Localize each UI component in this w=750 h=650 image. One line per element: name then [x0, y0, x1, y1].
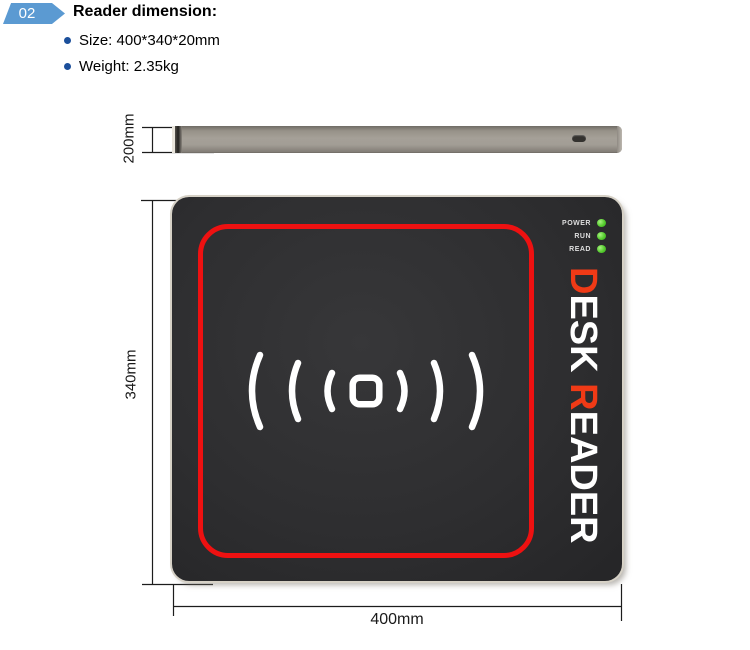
- led-label: READ: [569, 246, 591, 253]
- led-indicator-icon: [597, 245, 606, 253]
- led-panel: POWER RUN READ: [562, 219, 606, 258]
- brand-letter: R: [562, 383, 604, 410]
- side-edge-right: [617, 126, 622, 153]
- brand-letters: ESK: [562, 294, 604, 383]
- dim-label-height: 340mm: [123, 335, 140, 415]
- rfid-waves-icon: [238, 349, 494, 433]
- device-front-view: POWER RUN READ DESK READER: [172, 197, 622, 581]
- led-row-run: RUN: [562, 232, 606, 240]
- dim-label-width: 400mm: [347, 611, 447, 629]
- led-indicator-icon: [597, 219, 606, 227]
- device-side-view: [172, 126, 622, 153]
- product-dimension-figure: 02 Reader dimension: Size: 400*340*20mm …: [0, 0, 750, 650]
- dim-label-thickness: 200mm: [121, 99, 138, 179]
- brand-text: DESK READER: [562, 267, 604, 559]
- led-label: RUN: [574, 233, 591, 240]
- led-indicator-icon: [597, 232, 606, 240]
- brand-letters: EADER: [562, 411, 604, 544]
- brand-letter: D: [562, 267, 604, 294]
- side-edge-shadow: [175, 126, 182, 153]
- usb-port: [572, 135, 586, 142]
- led-row-power: POWER: [562, 219, 606, 227]
- led-row-read: READ: [562, 245, 606, 253]
- led-label: POWER: [562, 220, 591, 227]
